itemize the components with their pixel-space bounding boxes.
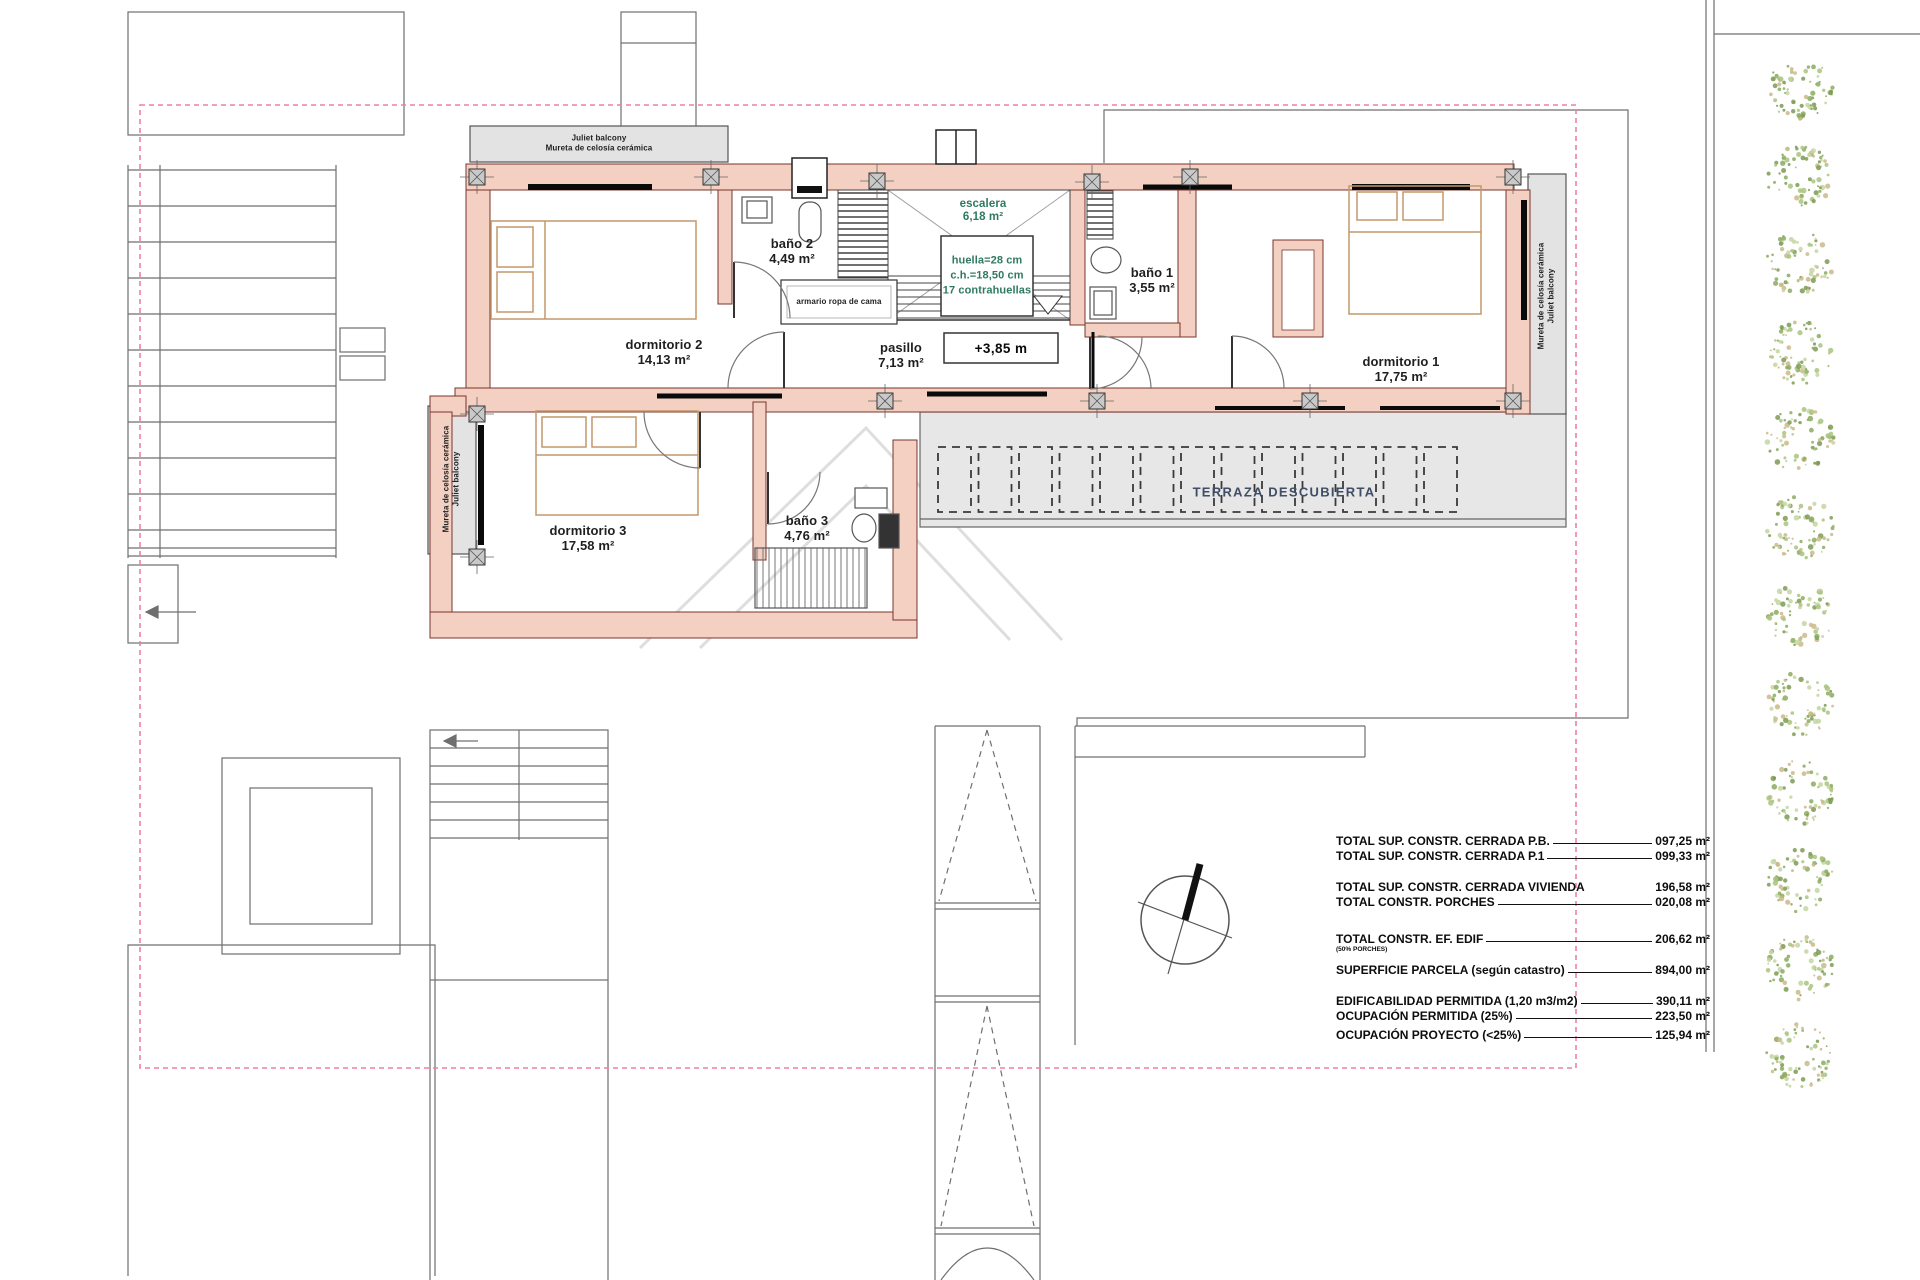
north-compass bbox=[1138, 864, 1232, 974]
room-label-bano3: baño 34,76 m² bbox=[784, 514, 830, 544]
legend-row: TOTAL SUP. CONSTR. CERRADA VIVIENDA 196,… bbox=[1336, 879, 1710, 894]
legend-row: TOTAL SUP. CONSTR. CERRADA P.B. 097,25 m… bbox=[1336, 833, 1710, 848]
terrace-label: TERRAZA DESCUBIERTA bbox=[1193, 486, 1376, 501]
stair-dimension-note: huella=28 cm c.h.=18,50 cm 17 contrahuel… bbox=[943, 254, 1031, 299]
legend-row: OCUPACIÓN PROYECTO (<25%) 125,94 m² bbox=[1336, 1027, 1710, 1042]
level-annotation: +3,85 m bbox=[975, 341, 1028, 357]
room-label-escalera: escalera6,18 m² bbox=[960, 198, 1007, 224]
room-label-dormitorio1: dormitorio 117,75 m² bbox=[1362, 355, 1439, 385]
balcony-label-right: Mureta de celosía cerámica Juliet balcon… bbox=[1537, 243, 1558, 350]
area-summary-legend: TOTAL SUP. CONSTR. CERRADA P.B. 097,25 m… bbox=[1336, 833, 1710, 1042]
leader-line bbox=[1553, 843, 1652, 844]
room-label-bano2: baño 24,49 m² bbox=[769, 237, 815, 267]
balcony-label-top: Juliet balcony Mureta de celosía cerámic… bbox=[546, 134, 653, 155]
tree-row bbox=[1765, 65, 1836, 1089]
legend-row: TOTAL CONSTR. EF. EDIF 206,62 m² bbox=[1336, 931, 1710, 946]
room-label-dormitorio3: dormitorio 317,58 m² bbox=[549, 524, 626, 554]
site-linework bbox=[128, 0, 1920, 1280]
room-label-bano1: baño 13,55 m² bbox=[1129, 266, 1175, 296]
legend-label: TOTAL SUP. CONSTR. CERRADA P.B. bbox=[1336, 834, 1550, 848]
legend-row: EDIFICABILIDAD PERMITIDA (1,20 m3/m2) 39… bbox=[1336, 993, 1710, 1008]
legend-row: SUPERFICIE PARCELA (según catastro) 894,… bbox=[1336, 962, 1710, 977]
legend-row: TOTAL SUP. CONSTR. CERRADA P.1 099,33 m² bbox=[1336, 848, 1710, 863]
plan-linework bbox=[0, 0, 1920, 1280]
walls bbox=[430, 164, 1530, 638]
legend-row: OCUPACIÓN PERMITIDA (25%) 223,50 m² bbox=[1336, 1008, 1710, 1023]
legend-row: TOTAL CONSTR. PORCHES 020,08 m² bbox=[1336, 894, 1710, 909]
legend-value: 097,25 m² bbox=[1655, 834, 1710, 848]
floor-plan-canvas: Juliet balcony Mureta de celosía cerámic… bbox=[0, 0, 1920, 1280]
balcony-label-left: Mureta de celosía cerámica Juliet balcon… bbox=[442, 426, 463, 533]
terrace bbox=[920, 412, 1566, 527]
legend-footnote: (50% PORCHES) bbox=[1336, 946, 1710, 956]
closet-label: armario ropa de cama bbox=[796, 297, 881, 307]
room-label-dormitorio2: dormitorio 214,13 m² bbox=[625, 338, 702, 368]
room-label-pasillo: pasillo7,13 m² bbox=[878, 341, 924, 371]
